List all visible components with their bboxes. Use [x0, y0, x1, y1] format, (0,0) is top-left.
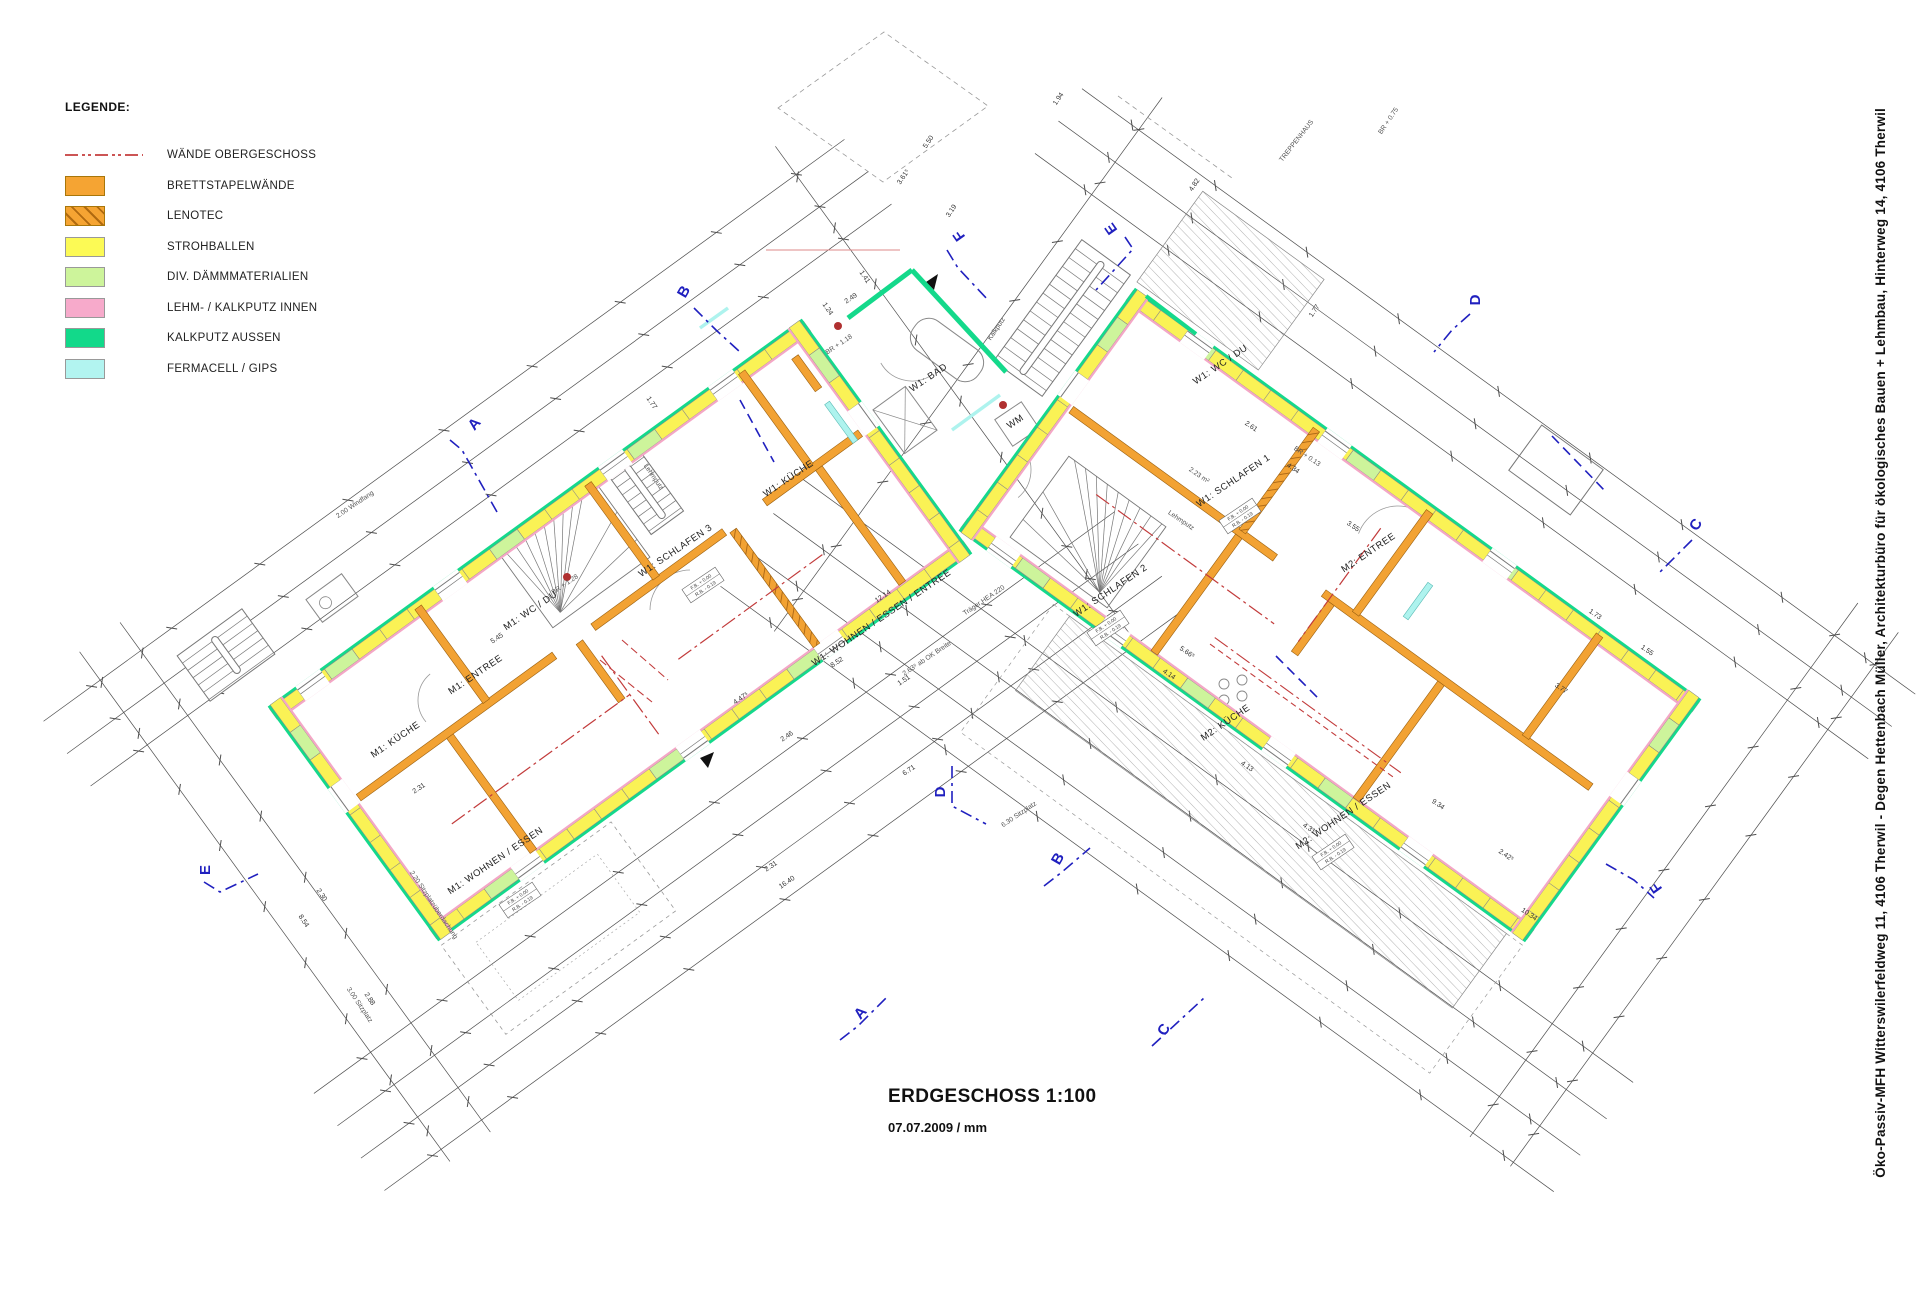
dimension-label: 4.82: [1188, 177, 1201, 192]
section-marker: C: [1154, 1021, 1174, 1039]
section-marker: F: [950, 227, 969, 244]
legend-item: STROHBALLEN: [65, 232, 317, 263]
dimension-label: 16.40: [778, 875, 797, 891]
dimension-label: 9.34: [1430, 798, 1445, 811]
legend-line-swatch: [65, 154, 143, 156]
annotation-label: Träger HEA 220: [962, 584, 1006, 617]
legend-item: LEHM- / KALKPUTZ INNEN: [65, 293, 317, 324]
dimension-label: 1.94: [1052, 91, 1065, 106]
section-line: [1434, 314, 1470, 352]
legend-item-label: STROHBALLEN: [167, 241, 255, 253]
room-label: M1: WC / DU: [502, 589, 560, 633]
dimension-label: 2.46: [780, 730, 795, 743]
legend-rows: WÄNDE OBERGESCHOSSBRETTSTAPELWÄNDELENOTE…: [65, 140, 317, 384]
legend-item-label: WÄNDE OBERGESCHOSS: [167, 149, 316, 161]
section-marker: E: [1101, 220, 1121, 238]
dimension-label: 5.45: [490, 632, 505, 645]
legend-item-label: KALKPUTZ AUSSEN: [167, 332, 281, 344]
dimension-label: 1.77: [645, 396, 658, 411]
section-line: [1660, 540, 1692, 572]
dimension-label: 5.66⁵: [1178, 645, 1196, 660]
legend-item: LENOTEC: [65, 201, 317, 232]
legend-item-label: DIV. DÄMMMATERIALIEN: [167, 271, 308, 283]
dimension-label: 2.31: [764, 860, 779, 873]
dimension-label: 6.71: [902, 764, 917, 777]
legend-color-swatch: [65, 237, 105, 257]
section-marker: C: [1686, 516, 1706, 534]
legend-item: BRETTSTAPELWÄNDE: [65, 171, 317, 202]
legend: LEGENDE: WÄNDE OBERGESCHOSSBRETTSTAPELWÄ…: [65, 100, 317, 384]
dimension-label: 1.55: [1639, 644, 1654, 657]
drawing-title: ERDGESCHOSS 1:100: [888, 1086, 1096, 1108]
dimension-label: 2.61: [1243, 420, 1258, 433]
annotation-label: Kalkputz: [987, 316, 1008, 342]
dimension-label: 2.31: [412, 782, 427, 795]
section-line: [947, 250, 988, 300]
section-marker: A: [851, 1003, 871, 1022]
dimension-label: 8.54: [297, 914, 310, 929]
legend-item-label: BRETTSTAPELWÄNDE: [167, 180, 295, 192]
dimension-label: 1.24: [821, 302, 834, 317]
title-block: ERDGESCHOSS 1:100 07.07.2009 / mm: [888, 1086, 1096, 1135]
legend-item-label: LENOTEC: [167, 210, 223, 222]
section-marker: D: [932, 786, 949, 797]
section-line: [450, 440, 497, 512]
annotation-label: 2.63⁵ ab OK Breite: [902, 640, 953, 678]
room-label: W1: KÜCHE: [761, 458, 815, 500]
dimension-label: 3.19: [945, 203, 958, 218]
legend-item-label: LEHM- / KALKPUTZ INNEN: [167, 302, 317, 314]
level-box: F.B. + 0.00R.B. - 0.19: [682, 567, 724, 603]
annotation-label: TREPPENHAUS: [1278, 118, 1315, 163]
section-line: [204, 874, 258, 892]
legend-color-swatch: [65, 176, 105, 196]
annotation-label: BR + 1.18: [825, 333, 854, 356]
section-line: [1606, 864, 1654, 898]
legend-color-swatch: [65, 328, 105, 348]
legend-color-swatch: [65, 267, 105, 287]
legend-item: KALKPUTZ AUSSEN: [65, 323, 317, 354]
dimension-label: 2.88: [363, 992, 376, 1007]
legend-item: WÄNDE OBERGESCHOSS: [65, 140, 317, 171]
section-marker: B: [1048, 850, 1068, 868]
legend-color-swatch: [65, 298, 105, 318]
dimension-label: 2.30: [315, 888, 328, 903]
project-sidebar: Öko-Passiv-MFH Witterswilerfeldweg 11, 4…: [1873, 0, 1888, 1286]
section-marker: A: [465, 414, 485, 433]
legend-item: DIV. DÄMMMATERIALIEN: [65, 262, 317, 293]
annotation-label: Lehmputz: [1167, 510, 1196, 533]
legend-item-label: FERMACELL / GIPS: [167, 363, 277, 375]
legend-title: LEGENDE:: [65, 100, 317, 114]
dimension-lines-layer: [44, 89, 1916, 1192]
annotation-label: BR + 0.75: [1377, 106, 1400, 135]
dimension-label: 1.51: [897, 674, 912, 687]
section-marker: B: [674, 283, 694, 301]
dimension-label: 2.42⁵: [1497, 848, 1515, 863]
section-marker: E: [197, 865, 214, 875]
legend-color-swatch: [65, 359, 105, 379]
dimension-label: 5.50: [922, 134, 935, 149]
annotation-label: 6.30 Sitzplatz: [1000, 800, 1038, 829]
dimension-label: 3.61⁵: [896, 168, 911, 186]
legend-color-swatch: [65, 206, 105, 226]
section-marker: D: [1467, 294, 1484, 305]
drawing-date-units: 07.07.2009 / mm: [888, 1120, 1096, 1135]
dimension-label: 3.55: [1345, 520, 1360, 533]
project-title-vertical: Öko-Passiv-MFH Witterswilerfeldweg 11, 4…: [1873, 108, 1888, 1178]
dimension-label: 1.41: [858, 270, 871, 285]
section-marker: F: [1647, 879, 1666, 896]
dimension-label: 2.49: [844, 292, 859, 305]
legend-item: FERMACELL / GIPS: [65, 354, 317, 385]
annotation-label: 2.23 m²: [1187, 466, 1211, 485]
